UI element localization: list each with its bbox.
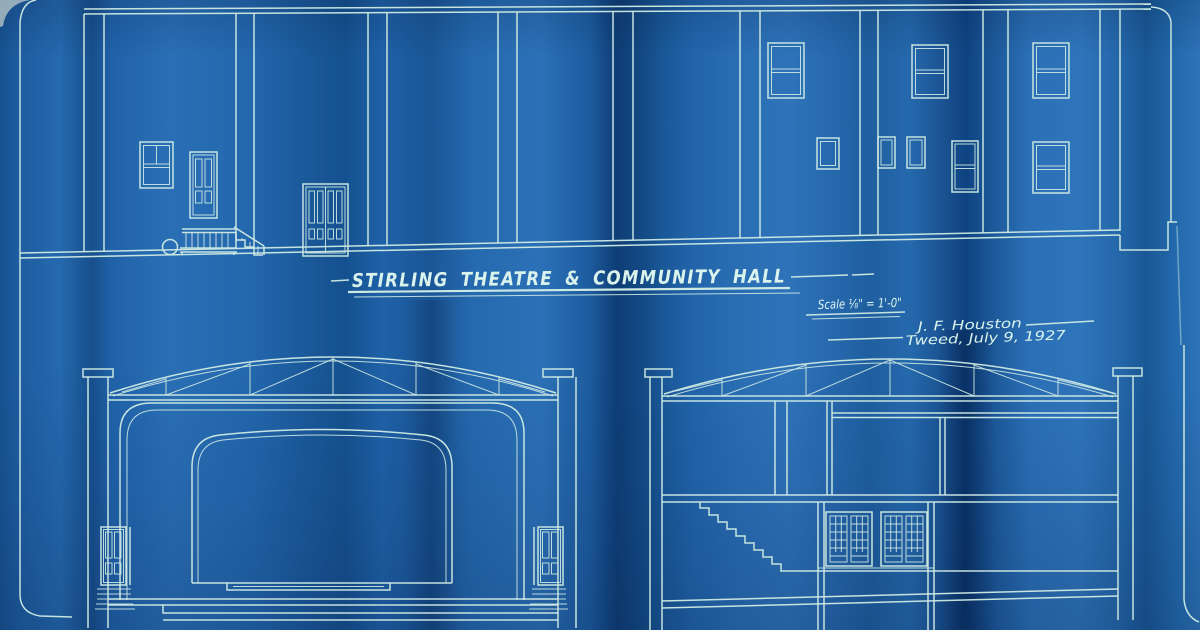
staircase: [700, 502, 790, 571]
proscenium-arch: [192, 430, 452, 591]
elevation-window: [1033, 43, 1069, 98]
proscenium-cross-section-view: [83, 357, 576, 628]
balcony-floor: [662, 495, 1118, 502]
bowstring-truss: [662, 359, 1118, 401]
roof-line: [84, 4, 1151, 14]
elevation-window: [140, 142, 173, 188]
elevation-small-window: [878, 137, 895, 168]
scale-note: Scale ⅛" = 1'-0": [818, 295, 902, 312]
blueprint-photo: STIRLING THEATRE & COMMUNITY HALL Scale …: [0, 0, 1200, 630]
elevation-small-window: [952, 141, 978, 192]
stage-floor: [108, 599, 558, 620]
elevation-small-window: [907, 137, 925, 168]
stage-door: [101, 527, 126, 585]
longitudinal-cross-section-view: [645, 359, 1142, 630]
paned-door-unit: [826, 512, 872, 566]
elevation-small-window: [1033, 142, 1069, 193]
elevation-small-window: [817, 138, 839, 169]
elevation-door: [190, 152, 217, 218]
paper-corner: [0, 0, 30, 27]
wall-joints: [84, 9, 1120, 252]
scale-underline: [806, 312, 905, 315]
elevation-window: [768, 43, 804, 98]
ceiling-cove: [120, 403, 524, 600]
sheet-border: [20, 0, 1199, 622]
ground-sill: [662, 589, 1118, 608]
blueprint-drawing: STIRLING THEATRE & COMMUNITY HALL Scale …: [0, 0, 1200, 630]
bowstring-truss: [108, 357, 558, 400]
upper-framing: [775, 401, 1118, 495]
scale-underline-2: [812, 317, 900, 320]
porch-stairs: [163, 227, 265, 255]
paned-door-unit: [881, 512, 927, 566]
side-elevation-view: [20, 4, 1177, 258]
stage-door: [538, 527, 563, 585]
elevation-double-door: [303, 184, 348, 256]
title-block: STIRLING THEATRE & COMMUNITY HALL Scale …: [331, 265, 1094, 349]
signature-dash: [1026, 321, 1094, 325]
title-underline-2: [354, 293, 800, 297]
wall-post: [83, 369, 576, 628]
title-dash-left: [331, 280, 349, 281]
title-dash-right: [791, 274, 874, 277]
barrel: [163, 240, 178, 255]
date-dash: [828, 338, 903, 341]
elevation-window: [912, 45, 948, 98]
